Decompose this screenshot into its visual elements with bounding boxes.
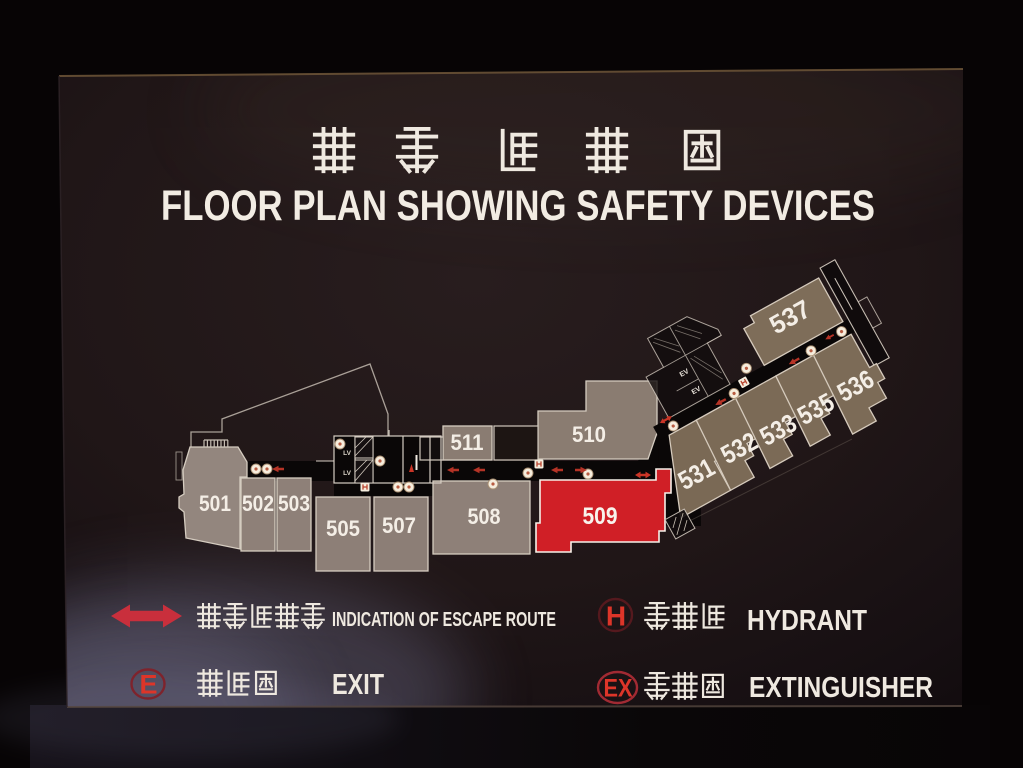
svg-text:507: 507	[382, 513, 416, 538]
svg-text:502: 502	[242, 491, 274, 516]
svg-text:EXTINGUISHER: EXTINGUISHER	[749, 672, 933, 704]
svg-text:511: 511	[451, 430, 484, 455]
svg-text:H: H	[606, 601, 626, 632]
svg-text:LV: LV	[343, 470, 351, 477]
svg-text:505: 505	[326, 516, 360, 541]
svg-text:510: 510	[572, 422, 606, 447]
svg-text:EX: EX	[604, 675, 633, 703]
svg-text:LV: LV	[343, 450, 351, 457]
svg-text:EXIT: EXIT	[332, 669, 384, 701]
svg-text:503: 503	[278, 491, 310, 516]
svg-text:HYDRANT: HYDRANT	[747, 605, 867, 637]
svg-text:508: 508	[468, 504, 501, 529]
svg-text:E: E	[139, 670, 157, 700]
svg-text:FLOOR PLAN SHOWING SAFETY DEVI: FLOOR PLAN SHOWING SAFETY DEVICES	[161, 182, 875, 230]
svg-text:509: 509	[583, 503, 618, 530]
svg-text:INDICATION OF ESCAPE ROUTE: INDICATION OF ESCAPE ROUTE	[332, 609, 556, 631]
svg-text:501: 501	[199, 491, 231, 516]
